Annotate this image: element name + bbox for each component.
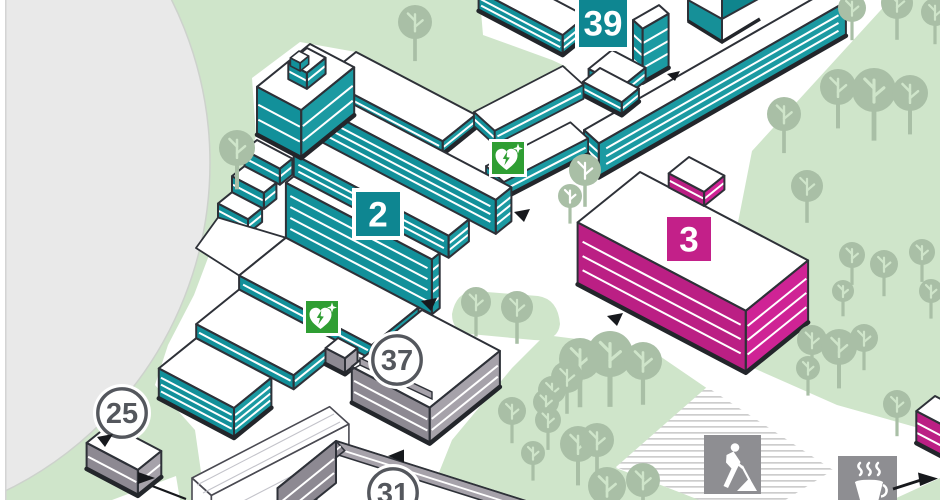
svg-text:3: 3 bbox=[679, 221, 698, 260]
svg-text:2: 2 bbox=[368, 196, 387, 235]
svg-text:25: 25 bbox=[106, 398, 138, 430]
svg-text:39: 39 bbox=[584, 5, 623, 44]
svg-text:37: 37 bbox=[381, 345, 413, 377]
svg-text:31: 31 bbox=[377, 478, 409, 500]
